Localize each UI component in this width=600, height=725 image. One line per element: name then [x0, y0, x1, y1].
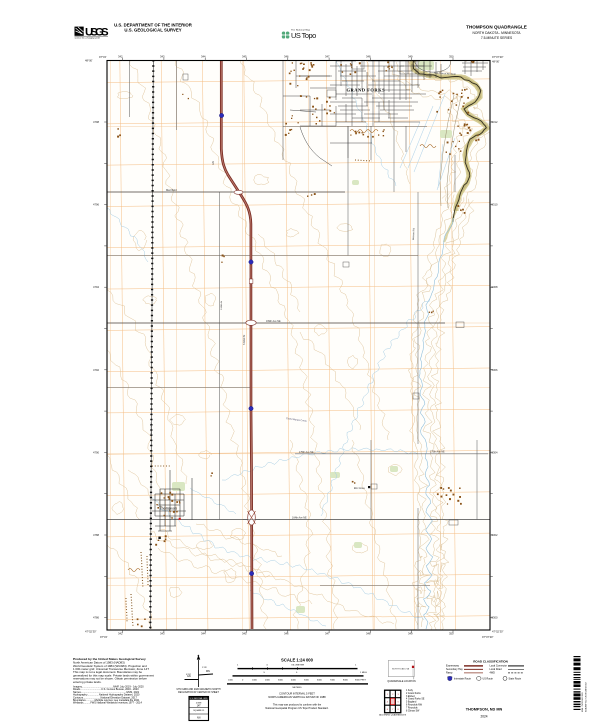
svg-text:NSN. 7643014613681: NSN. 7643014613681 [582, 691, 584, 712]
svg-text:THOMPSON QUADRANGLE: THOMPSON QUADRANGLE [466, 25, 527, 30]
svg-text:S 48th St: S 48th St [220, 301, 223, 310]
svg-text:MN: MN [206, 670, 210, 673]
svg-text:48°00': 48°00' [85, 59, 93, 63]
svg-text:5302: 5302 [492, 533, 498, 537]
svg-text:SCALE 1:24 000: SCALE 1:24 000 [281, 657, 314, 662]
svg-text:344: 344 [201, 55, 206, 59]
svg-text:48°00': 48°00' [492, 60, 500, 64]
svg-text:97°15': 97°15' [100, 635, 108, 639]
svg-text:346: 346 [284, 632, 289, 636]
svg-text:Interstate Route: Interstate Route [454, 678, 472, 681]
svg-text:4000: 4000 [291, 680, 297, 682]
svg-text:346: 346 [284, 55, 289, 59]
svg-text:2024: 2024 [480, 715, 487, 719]
svg-text:97°07'30": 97°07'30" [482, 635, 494, 639]
svg-text:1000: 1000 [228, 680, 234, 682]
svg-text:6000: 6000 [317, 680, 323, 682]
svg-text:entering private lands.: entering private lands. [73, 680, 102, 684]
svg-text:175th Ave NE: 175th Ave NE [430, 451, 445, 454]
svg-text:350: 350 [449, 632, 454, 636]
svg-text:5310: 5310 [492, 203, 498, 207]
svg-text:METERS: METERS [292, 687, 302, 689]
svg-text:science for a changing world: science for a changing world [75, 37, 101, 40]
svg-text:KILOMETER: KILOMETER [291, 665, 304, 667]
svg-text:342: 342 [118, 55, 123, 59]
svg-text:4796: 4796 [93, 203, 99, 207]
svg-text:3 Eldred: 3 Eldred [406, 695, 415, 698]
svg-text:NORTH AMERICAN VERTICAL DATUM: NORTH AMERICAN VERTICAL DATUM OF 1988 [268, 695, 326, 699]
svg-text:ROAD CLASSIFICATION: ROAD CLASSIFICATION [473, 659, 508, 663]
svg-text:BNSF RLWY: BNSF RLWY [151, 422, 153, 435]
svg-text:348: 348 [366, 632, 371, 636]
svg-text:US Route: US Route [483, 678, 494, 681]
svg-text:14T: 14T [197, 706, 202, 708]
svg-text:4790: 4790 [93, 450, 99, 454]
svg-text:2 Grand Forks: 2 Grand Forks [406, 692, 422, 695]
svg-text:8000: 8000 [343, 680, 349, 682]
svg-text:Wetlands..........FWS National: Wetlands..........FWS National Wetlands … [73, 702, 142, 705]
svg-text:1°35': 1°35' [202, 667, 208, 669]
svg-text:7 Reynolds: 7 Reynolds [406, 707, 418, 709]
svg-text:5000: 5000 [304, 680, 310, 682]
svg-text:GRAND FORKS: GRAND FORKS [347, 88, 386, 93]
svg-text:Elm Grove: Elm Grove [354, 487, 366, 490]
svg-text:47°52'30": 47°52'30" [85, 630, 97, 634]
svg-text:NGA REF NO. USGSX24K43302: NGA REF NO. USGSX24K43302 [585, 682, 588, 712]
svg-text:343: 343 [160, 632, 165, 636]
svg-text:1 MILE: 1 MILE [360, 672, 367, 674]
svg-text:State Route: State Route [509, 678, 522, 681]
svg-text:5312: 5312 [492, 120, 498, 124]
svg-text:QUADRANGLE LOCATION: QUADRANGLE LOCATION [387, 680, 416, 683]
svg-text:4798: 4798 [93, 120, 99, 124]
svg-text:3000: 3000 [278, 680, 284, 682]
svg-text:47°52'30": 47°52'30" [492, 630, 504, 634]
svg-text:5 Bygland: 5 Bygland [406, 702, 417, 704]
svg-text:8 Climax SW: 8 Climax SW [406, 710, 420, 712]
svg-text:4792: 4792 [93, 368, 99, 372]
svg-text:349: 349 [408, 632, 413, 636]
svg-text:1000: 1000 [252, 680, 258, 682]
svg-text:343: 343 [160, 55, 165, 59]
svg-text:U.S. NATIONAL GRID: U.S. NATIONAL GRID [190, 697, 208, 700]
svg-text:Ramp: Ramp [446, 672, 453, 675]
svg-text:2000: 2000 [265, 680, 271, 682]
svg-text:THOMPSON, ND MN: THOMPSON, ND MN [466, 708, 503, 712]
svg-text:NORTH DAKOTA - MINNESOTA: NORTH DAKOTA - MINNESOTA [473, 31, 522, 35]
svg-text:345: 345 [242, 632, 247, 636]
svg-text:97°15': 97°15' [99, 55, 107, 59]
svg-text:Belmont Rd: Belmont Rd [412, 227, 415, 240]
svg-text:97°07'30": 97°07'30" [492, 55, 504, 59]
svg-text:4786: 4786 [93, 616, 99, 620]
svg-text:UTM GRID AND 2020 MAGNETIC NOR: UTM GRID AND 2020 MAGNETIC NORTH [177, 688, 221, 691]
svg-text:5304: 5304 [492, 450, 498, 454]
svg-text:342: 342 [118, 632, 123, 636]
svg-text:4WD: 4WD [490, 672, 496, 675]
svg-text:ZONE: ZONE [196, 703, 202, 705]
svg-text:ADJOINING QUADRANGLES: ADJOINING QUADRANGLES [379, 714, 406, 717]
svg-text:1 Kelly: 1 Kelly [406, 690, 414, 692]
svg-text:345: 345 [242, 55, 247, 59]
svg-text:National Geospatial Program US: National Geospatial Program US Topo Prod… [265, 707, 328, 710]
svg-text:7.5-MINUTE SERIES: 7.5-MINUTE SERIES [481, 36, 513, 40]
svg-text:5300: 5300 [492, 616, 498, 620]
svg-text:7000: 7000 [330, 680, 336, 682]
svg-text:9000 FEET: 9000 FEET [355, 680, 367, 682]
svg-text:Thompson: Thompson [159, 506, 178, 511]
svg-text:348: 348 [366, 55, 371, 59]
svg-text:347: 347 [325, 632, 330, 636]
svg-text:★: ★ [197, 654, 200, 658]
svg-text:S 42nd St: S 42nd St [243, 335, 246, 345]
svg-text:4788: 4788 [93, 533, 99, 537]
svg-text:Merrifield: Merrifield [166, 188, 177, 192]
svg-text:169th Ave NE: 169th Ave NE [266, 320, 281, 323]
svg-text:SQUARE ID: SQUARE ID [193, 709, 205, 712]
svg-text:175th Ave NE: 175th Ave NE [299, 451, 314, 454]
svg-text:USGS: USGS [85, 26, 109, 38]
svg-text:NORTH DAKOTA: NORTH DAKOTA [392, 667, 410, 670]
svg-text:5308: 5308 [492, 285, 498, 289]
svg-text:5306: 5306 [492, 368, 498, 372]
svg-text:164th Ave NE: 164th Ave NE [292, 517, 307, 520]
svg-text:NN: NN [197, 718, 201, 720]
svg-text:6 Reynolds NW: 6 Reynolds NW [406, 705, 423, 707]
svg-text:350: 350 [449, 55, 454, 59]
svg-text:4 Grand Forks SE: 4 Grand Forks SE [406, 698, 425, 701]
svg-text:0°18': 0°18' [186, 674, 192, 676]
svg-text:U.S. GEOLOGICAL SURVEY: U.S. GEOLOGICAL SURVEY [124, 27, 181, 32]
svg-text:347: 347 [325, 55, 330, 59]
svg-text:US Topo: US Topo [291, 31, 316, 40]
svg-text:349: 349 [408, 55, 413, 59]
svg-text:344: 344 [201, 632, 206, 636]
svg-text:4794: 4794 [93, 285, 99, 289]
svg-text:DECLINATION AT CENTER OF SHEET: DECLINATION AT CENTER OF SHEET [178, 691, 219, 694]
